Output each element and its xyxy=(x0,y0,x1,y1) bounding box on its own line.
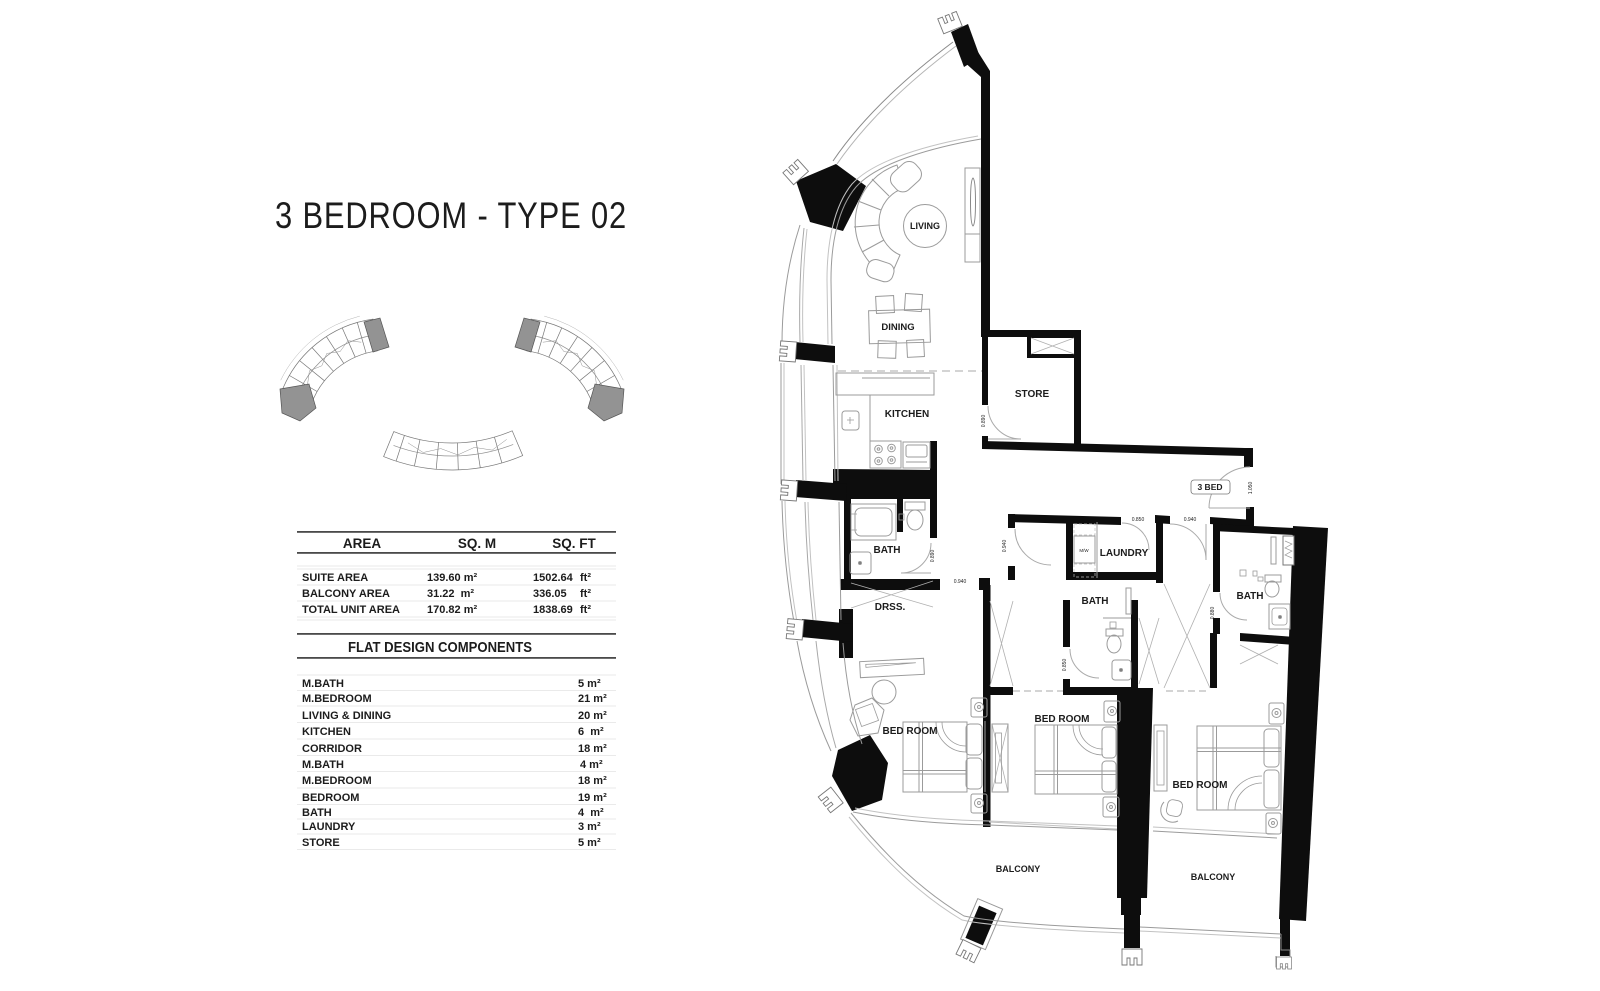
svg-text:0.890: 0.890 xyxy=(981,415,987,428)
svg-text:LAUNDRY: LAUNDRY xyxy=(1100,548,1149,559)
svg-text:3 BEDROOM - TYPE 02: 3 BEDROOM - TYPE 02 xyxy=(275,195,627,236)
svg-text:M.BEDROOM: M.BEDROOM xyxy=(302,693,372,705)
svg-text:AREA: AREA xyxy=(343,536,382,551)
svg-text:SQ. M: SQ. M xyxy=(458,536,496,551)
svg-text:0.940: 0.940 xyxy=(1184,517,1197,523)
svg-text:SQ. FT: SQ. FT xyxy=(552,536,596,551)
svg-text:336.05: 336.05 xyxy=(533,588,567,600)
svg-text:LIVING: LIVING xyxy=(910,221,940,231)
svg-text:ft²: ft² xyxy=(580,588,591,600)
svg-text:DINING: DINING xyxy=(881,322,914,333)
svg-text:STORE: STORE xyxy=(302,837,340,849)
svg-text:0.940: 0.940 xyxy=(1002,540,1008,553)
svg-text:139.60 m²: 139.60 m² xyxy=(427,572,477,584)
svg-text:BATH: BATH xyxy=(1236,591,1263,602)
svg-text:20 m²: 20 m² xyxy=(578,710,607,722)
svg-text:ft²: ft² xyxy=(580,572,591,584)
svg-text:BATH: BATH xyxy=(873,545,900,556)
svg-text:FLAT DESIGN COMPONENTS: FLAT DESIGN COMPONENTS xyxy=(348,639,532,656)
svg-text:KITCHEN: KITCHEN xyxy=(885,409,929,420)
svg-text:31.22 m²: 31.22 m² xyxy=(427,588,474,600)
svg-text:1.050: 1.050 xyxy=(1248,482,1254,495)
svg-text:5 m²: 5 m² xyxy=(578,678,601,690)
svg-text:BEDROOM: BEDROOM xyxy=(302,792,359,804)
svg-text:M.BATH: M.BATH xyxy=(302,759,344,771)
svg-text:LIVING & DINING: LIVING & DINING xyxy=(302,710,391,722)
svg-text:BATH: BATH xyxy=(302,807,332,819)
svg-text:BALCONY: BALCONY xyxy=(1191,872,1236,882)
svg-text:BED ROOM: BED ROOM xyxy=(1173,780,1228,791)
svg-text:BALCONY AREA: BALCONY AREA xyxy=(302,588,390,600)
svg-text:SUITE AREA: SUITE AREA xyxy=(302,572,368,584)
svg-text:4 m²: 4 m² xyxy=(578,807,604,819)
svg-text:18 m²: 18 m² xyxy=(578,743,607,755)
svg-text:0.850: 0.850 xyxy=(1062,659,1068,672)
svg-text:4 m²: 4 m² xyxy=(580,759,603,771)
svg-text:DRSS.: DRSS. xyxy=(875,602,906,613)
svg-text:21 m²: 21 m² xyxy=(578,693,607,705)
svg-text:3 m²: 3 m² xyxy=(578,821,601,833)
svg-text:BATH: BATH xyxy=(1081,596,1108,607)
svg-text:0.850: 0.850 xyxy=(1132,517,1145,523)
svg-text:CORRIDOR: CORRIDOR xyxy=(302,743,362,755)
svg-text:170.82 m²: 170.82 m² xyxy=(427,604,477,616)
svg-text:6 m²: 6 m² xyxy=(578,726,604,738)
svg-text:0.880: 0.880 xyxy=(1210,607,1216,620)
svg-text:5 m²: 5 m² xyxy=(578,837,601,849)
svg-text:LAUNDRY: LAUNDRY xyxy=(302,821,356,833)
svg-text:0.890: 0.890 xyxy=(930,550,936,563)
svg-text:STORE: STORE xyxy=(1015,389,1050,400)
svg-text:18 m²: 18 m² xyxy=(578,775,607,787)
svg-text:M/W: M/W xyxy=(1079,548,1089,553)
svg-text:TOTAL UNIT AREA: TOTAL UNIT AREA xyxy=(302,604,400,616)
svg-text:1838.69: 1838.69 xyxy=(533,604,573,616)
svg-text:M.BATH: M.BATH xyxy=(302,678,344,690)
svg-text:M.BEDROOM: M.BEDROOM xyxy=(302,775,372,787)
svg-text:0.940: 0.940 xyxy=(954,579,967,585)
svg-text:3 BED: 3 BED xyxy=(1197,482,1222,492)
svg-text:BALCONY: BALCONY xyxy=(996,864,1041,874)
svg-text:19 m²: 19 m² xyxy=(578,792,607,804)
svg-text:BED ROOM: BED ROOM xyxy=(1035,714,1090,725)
svg-text:BED ROOM: BED ROOM xyxy=(883,726,938,737)
svg-text:KITCHEN: KITCHEN xyxy=(302,726,351,738)
svg-text:ft²: ft² xyxy=(580,604,591,616)
svg-text:1502.64: 1502.64 xyxy=(533,572,574,584)
